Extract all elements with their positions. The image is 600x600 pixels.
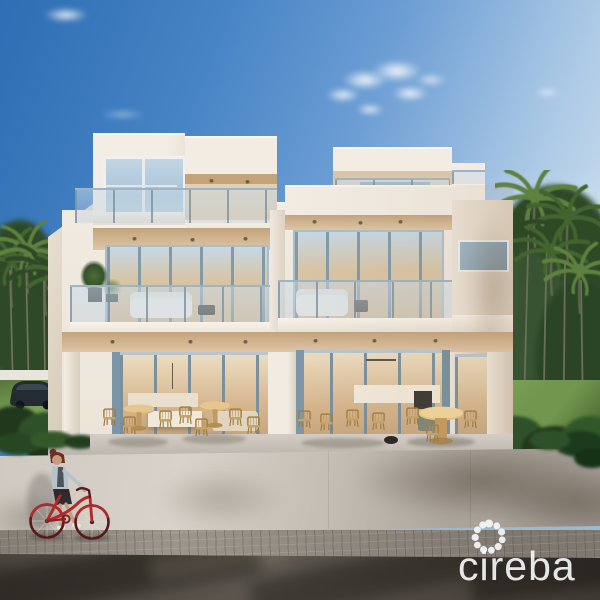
chair <box>103 409 115 426</box>
cloud <box>44 8 88 22</box>
roof-terrace-railing-left <box>75 188 277 223</box>
penthouse-fascia-right <box>333 147 452 173</box>
cloud <box>392 86 428 101</box>
upper-fascia <box>185 136 277 176</box>
woman-with-red-bicycle <box>20 447 132 542</box>
cloud <box>534 88 560 97</box>
cireba-wordmark: cireba <box>458 546 576 587</box>
patio-dining-left <box>86 396 276 452</box>
pendant-light <box>172 363 173 389</box>
leaf-shadow-on-wall <box>130 458 310 534</box>
cloud <box>326 88 360 102</box>
cloud <box>100 110 146 119</box>
cloud <box>372 60 422 82</box>
cireba-watermark: cireba <box>440 500 600 595</box>
cloud <box>356 104 384 115</box>
overhanging-leaves-right <box>520 428 600 472</box>
architectural-rendering: cireba <box>0 0 600 600</box>
cloud <box>416 74 446 86</box>
roof-wing-railing <box>452 170 485 184</box>
patio-dining-right <box>293 398 488 452</box>
bag-on-floor <box>384 436 398 444</box>
